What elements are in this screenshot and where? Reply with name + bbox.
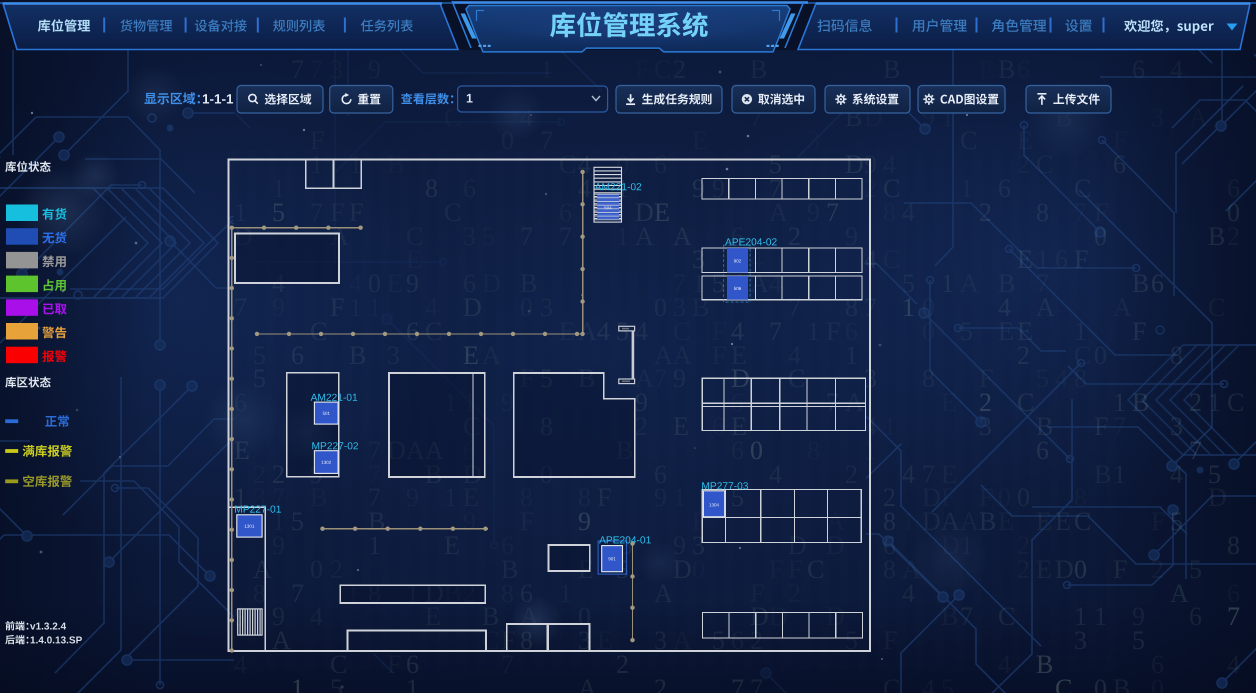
svg-text:B: B — [1208, 222, 1225, 251]
svg-text:C: C — [1208, 293, 1225, 322]
svg-text:B: B — [1132, 388, 1149, 417]
svg-text:7: 7 — [1227, 602, 1240, 631]
svg-text:6: 6 — [1132, 55, 1145, 84]
svg-text:2: 2 — [1227, 222, 1240, 251]
svg-text:A: A — [1170, 579, 1189, 608]
svg-text:8: 8 — [1227, 531, 1240, 560]
svg-text:4: 4 — [1170, 55, 1183, 84]
svg-text:E: E — [979, 55, 995, 84]
svg-text:5: 5 — [1189, 555, 1202, 584]
svg-text:7: 7 — [291, 55, 304, 84]
svg-text:5: 5 — [1132, 626, 1145, 655]
svg-text:B: B — [1132, 269, 1149, 298]
svg-text:C: C — [654, 55, 671, 84]
svg-text:D: D — [1208, 483, 1227, 512]
svg-text:7: 7 — [1189, 436, 1202, 465]
svg-text:8: 8 — [1170, 341, 1183, 370]
svg-text:F: F — [1151, 507, 1165, 536]
svg-text:B: B — [750, 55, 767, 84]
svg-text:3: 3 — [330, 55, 343, 84]
svg-text:A: A — [1189, 103, 1208, 132]
svg-text:5: 5 — [1170, 507, 1183, 536]
svg-text:3: 3 — [1170, 412, 1183, 441]
svg-text:2: 2 — [1151, 555, 1164, 584]
svg-text:1: 1 — [540, 55, 553, 84]
svg-text:1: 1 — [1208, 388, 1221, 417]
svg-text:F: F — [1132, 317, 1146, 346]
svg-text:6: 6 — [1017, 55, 1030, 84]
svg-text:7: 7 — [310, 55, 323, 84]
svg-text:6: 6 — [1151, 269, 1164, 298]
svg-text:C: C — [1227, 388, 1244, 417]
svg-text:2: 2 — [673, 55, 686, 84]
svg-text:6: 6 — [1189, 602, 1202, 631]
svg-text:2: 2 — [1189, 388, 1202, 417]
svg-text:B: B — [998, 55, 1015, 84]
svg-text:9: 9 — [368, 55, 381, 84]
svg-text:3: 3 — [1151, 103, 1164, 132]
svg-text:4: 4 — [1170, 460, 1183, 489]
svg-text:F: F — [635, 55, 649, 84]
svg-text:4: 4 — [1227, 650, 1240, 679]
